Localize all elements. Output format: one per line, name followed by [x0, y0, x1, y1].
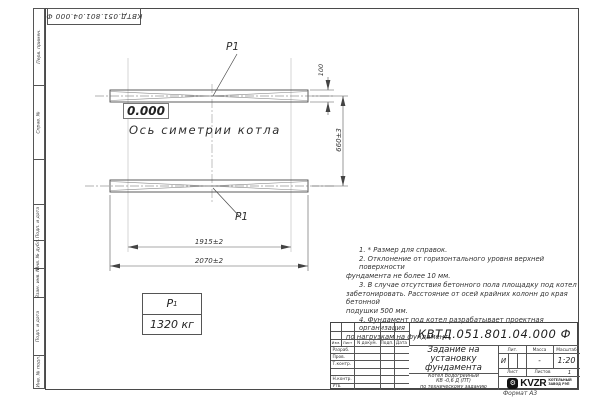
margin-cell: Инв. № дубл. [34, 241, 44, 269]
margin-label: Справ. № [37, 111, 42, 133]
load-symbol: Р [166, 297, 173, 310]
margin-cell: Взам. инв. № [34, 269, 44, 297]
dim-label-100: 100 [317, 64, 325, 76]
tb-row-developed: Разраб. [333, 348, 350, 353]
margin-label: Взам. инв. № [37, 267, 42, 298]
tb-header-sign: Подп. [380, 341, 394, 346]
boiler-symmetry-axis-label: Ось симетрии котла [129, 123, 281, 137]
p1-label-bottom: Р1 [235, 211, 248, 223]
dim-label-1915: 1915±2 [195, 238, 223, 246]
title-block: Изм. Лист N докум. Подп. Дата Разраб. Пр… [330, 322, 578, 389]
margin-label: Подп. и дата [37, 207, 42, 238]
margin-cell-empty [34, 160, 44, 205]
note-line: 1. * Размер для справок. [346, 246, 578, 255]
margin-cell: Инв. № подл. [34, 356, 44, 388]
tb-line [331, 331, 409, 332]
tb-header-date: Дата [394, 341, 409, 346]
tb-title: Задание на установку фундамента [409, 346, 498, 373]
tb-header-doc: N докум. [354, 341, 380, 346]
tb-subtitle-line: по техническому заданию [420, 385, 487, 390]
load-symbol-sub: 1 [173, 300, 177, 308]
note-line: подушки 500 мм. [346, 307, 578, 316]
tb-header-izm: Изм. [331, 341, 341, 345]
tb-row-tcontrol: Т.контр. [333, 362, 352, 367]
tb-row-approved: Утв. [333, 384, 342, 389]
load-value: 1320 кг [150, 318, 194, 331]
tb-lit-label: Лит. [499, 348, 526, 353]
kvzr-logo-caption: КОТЕЛЬНЫЙ ЗАВОД РЭП [548, 379, 571, 387]
tb-header-list: Лист [341, 341, 354, 345]
tb-row-ncontrol: Н.контр. [333, 377, 352, 382]
margin-label: Инв. № дубл. [37, 239, 42, 270]
tb-subtitle: Котел Водогрейный КВ -0,6 Д (ПТ) по техн… [409, 373, 498, 390]
tb-scale-value: 1:20 [553, 353, 580, 368]
drawing-sheet: Перв. примен. Справ. № Подп. и дата Инв.… [0, 0, 600, 400]
load-table: Р1 1320 кг [142, 293, 202, 335]
margin-cell: Перв. примен. [34, 9, 44, 86]
tb-row-checked: Пров. [333, 355, 346, 360]
note-line: фундамента не более 10 мм. [346, 272, 578, 281]
load-value-row: 1320 кг [143, 315, 201, 335]
load-symbol-row: Р1 [143, 294, 201, 315]
tb-right-section: Лит. Масса Масштаб И - 1:20 Лист Листов … [498, 346, 579, 390]
tb-mass-label: Масса [526, 348, 553, 353]
left-margin-column: Перв. примен. Справ. № Подп. и дата Инв.… [33, 8, 45, 389]
tb-sheets-value: 1 [559, 370, 580, 376]
note-line: 2. Отклонение от горизонтального уровня … [346, 255, 578, 272]
dim-label-2070: 2070±2 [195, 257, 223, 265]
tb-scale-label: Масштаб [553, 348, 580, 353]
stamp-text: КВТД.051.801.04.000 Ф [46, 12, 142, 21]
tb-sheet-label: Лист [499, 370, 526, 375]
tb-title-line: фундамента [425, 364, 482, 373]
kvzr-logo-text: KVZR [520, 378, 546, 389]
tb-line [508, 353, 509, 368]
tb-logo-row: ⚙ KVZR КОТЕЛЬНЫЙ ЗАВОД РЭП [499, 376, 580, 390]
tb-line [380, 323, 381, 390]
logo-caption-line: ЗАВОД РЭП [548, 383, 571, 387]
margin-label: Подп. и дата [37, 310, 42, 341]
tb-line [354, 323, 355, 390]
kvzr-logo-icon: ⚙ [507, 378, 518, 389]
p1-label-top: Р1 [226, 41, 239, 53]
margin-label: Перв. примен. [37, 30, 42, 65]
format-label: Формат А3 [503, 390, 537, 397]
margin-cell: Справ. № [34, 86, 44, 161]
note-line: 3. В случае отсутствия бетонного пола пл… [346, 281, 578, 290]
rotated-docnumber-stamp: КВТД.051.801.04.000 Ф [47, 8, 141, 25]
tb-sheets-label: Листов [526, 370, 559, 375]
tb-doc-number: КВТД.051.801.04.000 Ф [409, 323, 579, 346]
tb-lit-value: И [499, 353, 508, 368]
margin-cell: Подп. и дата [34, 205, 44, 240]
tb-line [394, 323, 395, 390]
tb-line [331, 383, 409, 384]
tb-mass-value: - [526, 353, 553, 368]
margin-label: Инв. № подл. [37, 356, 42, 388]
note-line: забетонировать. Расстояние от осей крайн… [346, 290, 578, 307]
tb-line [517, 353, 518, 368]
margin-cell: Подп. и дата [34, 298, 44, 356]
dim-label-660: 660±3 [335, 128, 343, 152]
tb-line [331, 368, 409, 369]
zero-level-box: 0.000 [123, 103, 169, 119]
